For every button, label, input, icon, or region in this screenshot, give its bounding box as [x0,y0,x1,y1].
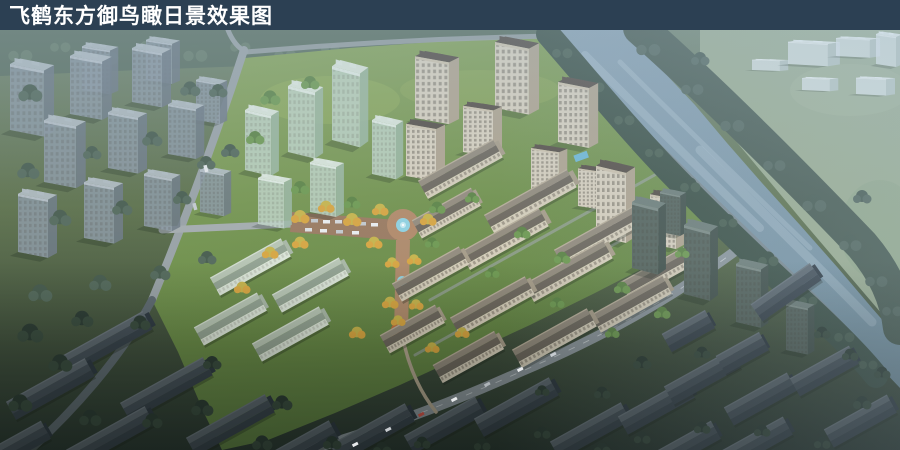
atmosphere-haze-right [0,30,900,450]
rendering-screenshot: 飞鹤东方御鸟瞰日景效果图 [0,0,900,450]
aerial-rendering-canvas: 飞鹤东方御鸟瞰日景效果图 [0,0,900,450]
title-bar: 飞鹤东方御鸟瞰日景效果图 [0,0,900,30]
rendering-title: 飞鹤东方御鸟瞰日景效果图 [9,4,273,28]
